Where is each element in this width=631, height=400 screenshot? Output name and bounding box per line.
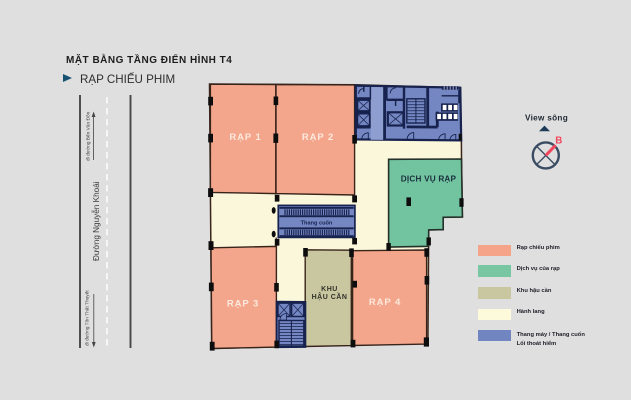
svg-text:RẠP 3: RẠP 3 [227,299,259,310]
svg-text:đi đường Tôn Thất Thuyết: đi đường Tôn Thất Thuyết [84,290,90,346]
svg-text:Đường Nguyễn Khoái: Đường Nguyễn Khoái [91,181,101,261]
svg-text:RẠP 1: RẠP 1 [229,132,261,143]
svg-text:RẠP 4: RẠP 4 [369,297,401,308]
svg-text:KHU: KHU [321,286,338,293]
svg-text:Thang cuốn: Thang cuốn [301,219,333,226]
svg-text:RẠP 2: RẠP 2 [302,132,334,143]
svg-text:đi đường Bến Vân Đồn: đi đường Bến Vân Đồn [86,111,92,161]
svg-text:DỊCH VỤ RẠP: DỊCH VỤ RẠP [401,175,457,184]
